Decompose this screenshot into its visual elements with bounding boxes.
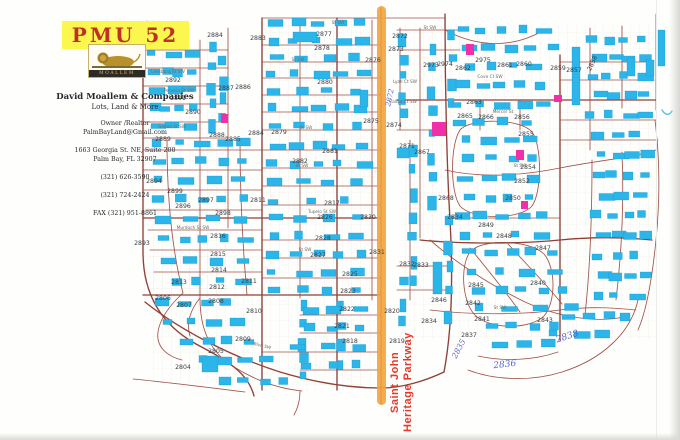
svg-text:2863: 2863: [466, 99, 482, 106]
svg-text:2846: 2846: [431, 297, 447, 304]
svg-text:2887: 2887: [218, 85, 234, 92]
svg-text:2974: 2974: [437, 61, 453, 68]
company-name: David Moallem & Companies: [28, 92, 222, 102]
svg-text:2849: 2849: [478, 222, 494, 229]
svg-text:2816: 2816: [210, 233, 226, 240]
email-line: PalmBayLand@Gmail.com: [28, 129, 222, 136]
svg-text:2866: 2866: [478, 114, 494, 121]
svg-text:2860: 2860: [516, 61, 532, 68]
svg-text:2862: 2862: [455, 65, 471, 72]
svg-text:2861: 2861: [497, 62, 513, 69]
company-logo: MOALLEM: [88, 44, 146, 78]
svg-text:2855: 2855: [518, 131, 534, 138]
svg-text:2834: 2834: [421, 318, 437, 325]
svg-text:2818: 2818: [342, 338, 358, 345]
svg-text:2820: 2820: [384, 308, 400, 315]
svg-text:2893: 2893: [134, 240, 150, 247]
svg-text:2878: 2878: [314, 45, 330, 52]
svg-text:2845: 2845: [468, 282, 484, 289]
svg-text:2826: 2826: [317, 214, 333, 221]
svg-text:2835: 2835: [450, 338, 468, 361]
svg-text:2813: 2813: [171, 279, 187, 286]
svg-text:2807: 2807: [176, 302, 192, 309]
svg-text:2817: 2817: [324, 200, 340, 207]
svg-text:2840: 2840: [530, 280, 546, 287]
svg-text:2804: 2804: [175, 364, 191, 371]
scan-edge-bottom: [0, 433, 680, 440]
svg-text:2871: 2871: [399, 143, 415, 150]
svg-text:2814: 2814: [211, 267, 227, 274]
owner-line: Owner /Realtor: [28, 120, 222, 127]
svg-text:2831: 2831: [369, 249, 385, 256]
svg-text:Murdoch St SW: Murdoch St SW: [177, 225, 210, 231]
svg-text:2884: 2884: [248, 130, 264, 137]
svg-text:2836: 2836: [492, 359, 517, 371]
svg-text:2811: 2811: [250, 197, 266, 204]
scan-edge-right: [669, 0, 680, 440]
phone-line-1: (321) 626-3590: [28, 174, 222, 181]
svg-text:2805: 2805: [208, 348, 224, 355]
svg-text:2867: 2867: [414, 149, 430, 156]
svg-text:2852: 2852: [514, 178, 530, 185]
svg-text:2806: 2806: [155, 295, 171, 302]
svg-text:Cove Ct SW: Cove Ct SW: [477, 74, 503, 80]
svg-text:2868: 2868: [438, 195, 454, 202]
svg-text:2841: 2841: [474, 316, 490, 323]
address-line-1: 1663 Georgia St. NE, Suite 200: [28, 147, 222, 154]
address-line-2: Palm Bay, FL 32907: [28, 156, 222, 163]
svg-text:Mercer St: Mercer St: [493, 109, 514, 115]
scanned-page: 2884288328922891289028872886288828772878…: [0, 0, 680, 440]
svg-text:St SW: St SW: [494, 305, 508, 311]
svg-text:2809: 2809: [235, 336, 251, 343]
svg-text:2842: 2842: [465, 300, 481, 307]
svg-text:2850: 2850: [505, 195, 521, 202]
svg-text:2843: 2843: [537, 317, 553, 324]
svg-text:2821: 2821: [334, 323, 350, 330]
svg-text:2865: 2865: [457, 113, 473, 120]
company-info: David Moallem & Companies Lots, Land & M…: [28, 92, 222, 219]
svg-text:2823: 2823: [340, 288, 356, 295]
svg-text:2975: 2975: [475, 57, 491, 64]
svg-text:2892: 2892: [165, 77, 181, 84]
svg-text:2883: 2883: [250, 35, 266, 42]
svg-text:2811: 2811: [241, 278, 257, 285]
svg-text:2810: 2810: [246, 308, 262, 315]
svg-text:2815: 2815: [210, 251, 226, 258]
svg-text:2828: 2828: [315, 235, 331, 242]
company-tagline: Lots, Land & More: [28, 103, 222, 111]
svg-text:St SW: St SW: [296, 163, 310, 169]
svg-text:2886: 2886: [235, 84, 251, 91]
svg-text:St SW: St SW: [332, 20, 346, 26]
svg-text:St SW: St SW: [300, 125, 314, 131]
svg-text:2825: 2825: [342, 271, 358, 278]
parkway-band: [377, 6, 386, 405]
svg-text:2884: 2884: [207, 32, 223, 39]
svg-text:2833: 2833: [413, 262, 429, 269]
svg-text:St SW: St SW: [514, 163, 528, 169]
svg-text:St SW: St SW: [424, 25, 438, 31]
parkway-label-line2: Heritage Parkway: [402, 332, 414, 432]
svg-text:2848: 2848: [496, 233, 512, 240]
svg-text:2876: 2876: [365, 57, 381, 64]
svg-text:2873: 2873: [388, 46, 404, 53]
svg-text:2837: 2837: [461, 332, 477, 339]
svg-text:2856: 2856: [514, 114, 530, 121]
lion-icon: [90, 48, 144, 70]
svg-text:2808: 2808: [208, 298, 224, 305]
fax-line: FAX (321) 951-8861: [28, 210, 222, 217]
svg-text:Tupelo St SW: Tupelo St SW: [307, 209, 337, 215]
svg-text:2877: 2877: [316, 31, 332, 38]
svg-text:2827: 2827: [310, 252, 326, 259]
svg-text:2847: 2847: [535, 245, 551, 252]
svg-text:2881: 2881: [322, 148, 338, 155]
svg-text:2885: 2885: [225, 136, 241, 143]
svg-text:2872: 2872: [392, 33, 408, 40]
logo-text: MOALLEM: [89, 70, 145, 77]
parkway-label: Saint JohnHeritage Parkway: [389, 332, 414, 432]
svg-text:2874: 2874: [386, 122, 402, 129]
svg-text:2822: 2822: [339, 306, 355, 313]
svg-text:2812: 2812: [209, 284, 225, 291]
svg-text:Leesburg St SW: Leesburg St SW: [151, 69, 186, 75]
parkway-label-line1: Saint John: [389, 352, 401, 413]
svg-text:2875: 2875: [363, 118, 379, 125]
svg-text:2830: 2830: [360, 214, 376, 221]
svg-text:2859: 2859: [550, 65, 566, 72]
svg-text:St SW: St SW: [292, 57, 306, 63]
svg-text:2834: 2834: [447, 214, 463, 221]
page-crease: [656, 0, 657, 440]
svg-text:St SW: St SW: [299, 247, 313, 253]
svg-text:2880: 2880: [317, 79, 333, 86]
svg-text:2857: 2857: [566, 67, 582, 74]
phone-line-2: (321) 724-2424: [28, 192, 222, 199]
svg-text:Lyall Ct SW: Lyall Ct SW: [393, 79, 418, 85]
svg-text:2879: 2879: [271, 129, 287, 136]
